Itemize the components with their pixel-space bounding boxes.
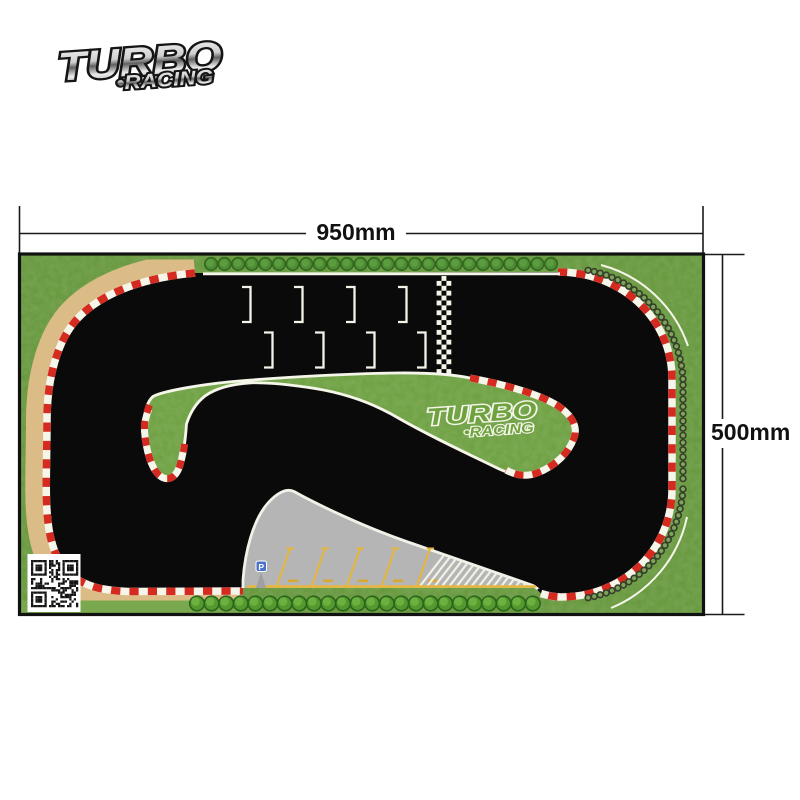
svg-text:500mm: 500mm <box>711 419 790 445</box>
svg-text:950mm: 950mm <box>316 219 395 245</box>
svg-text:P: P <box>258 562 264 572</box>
